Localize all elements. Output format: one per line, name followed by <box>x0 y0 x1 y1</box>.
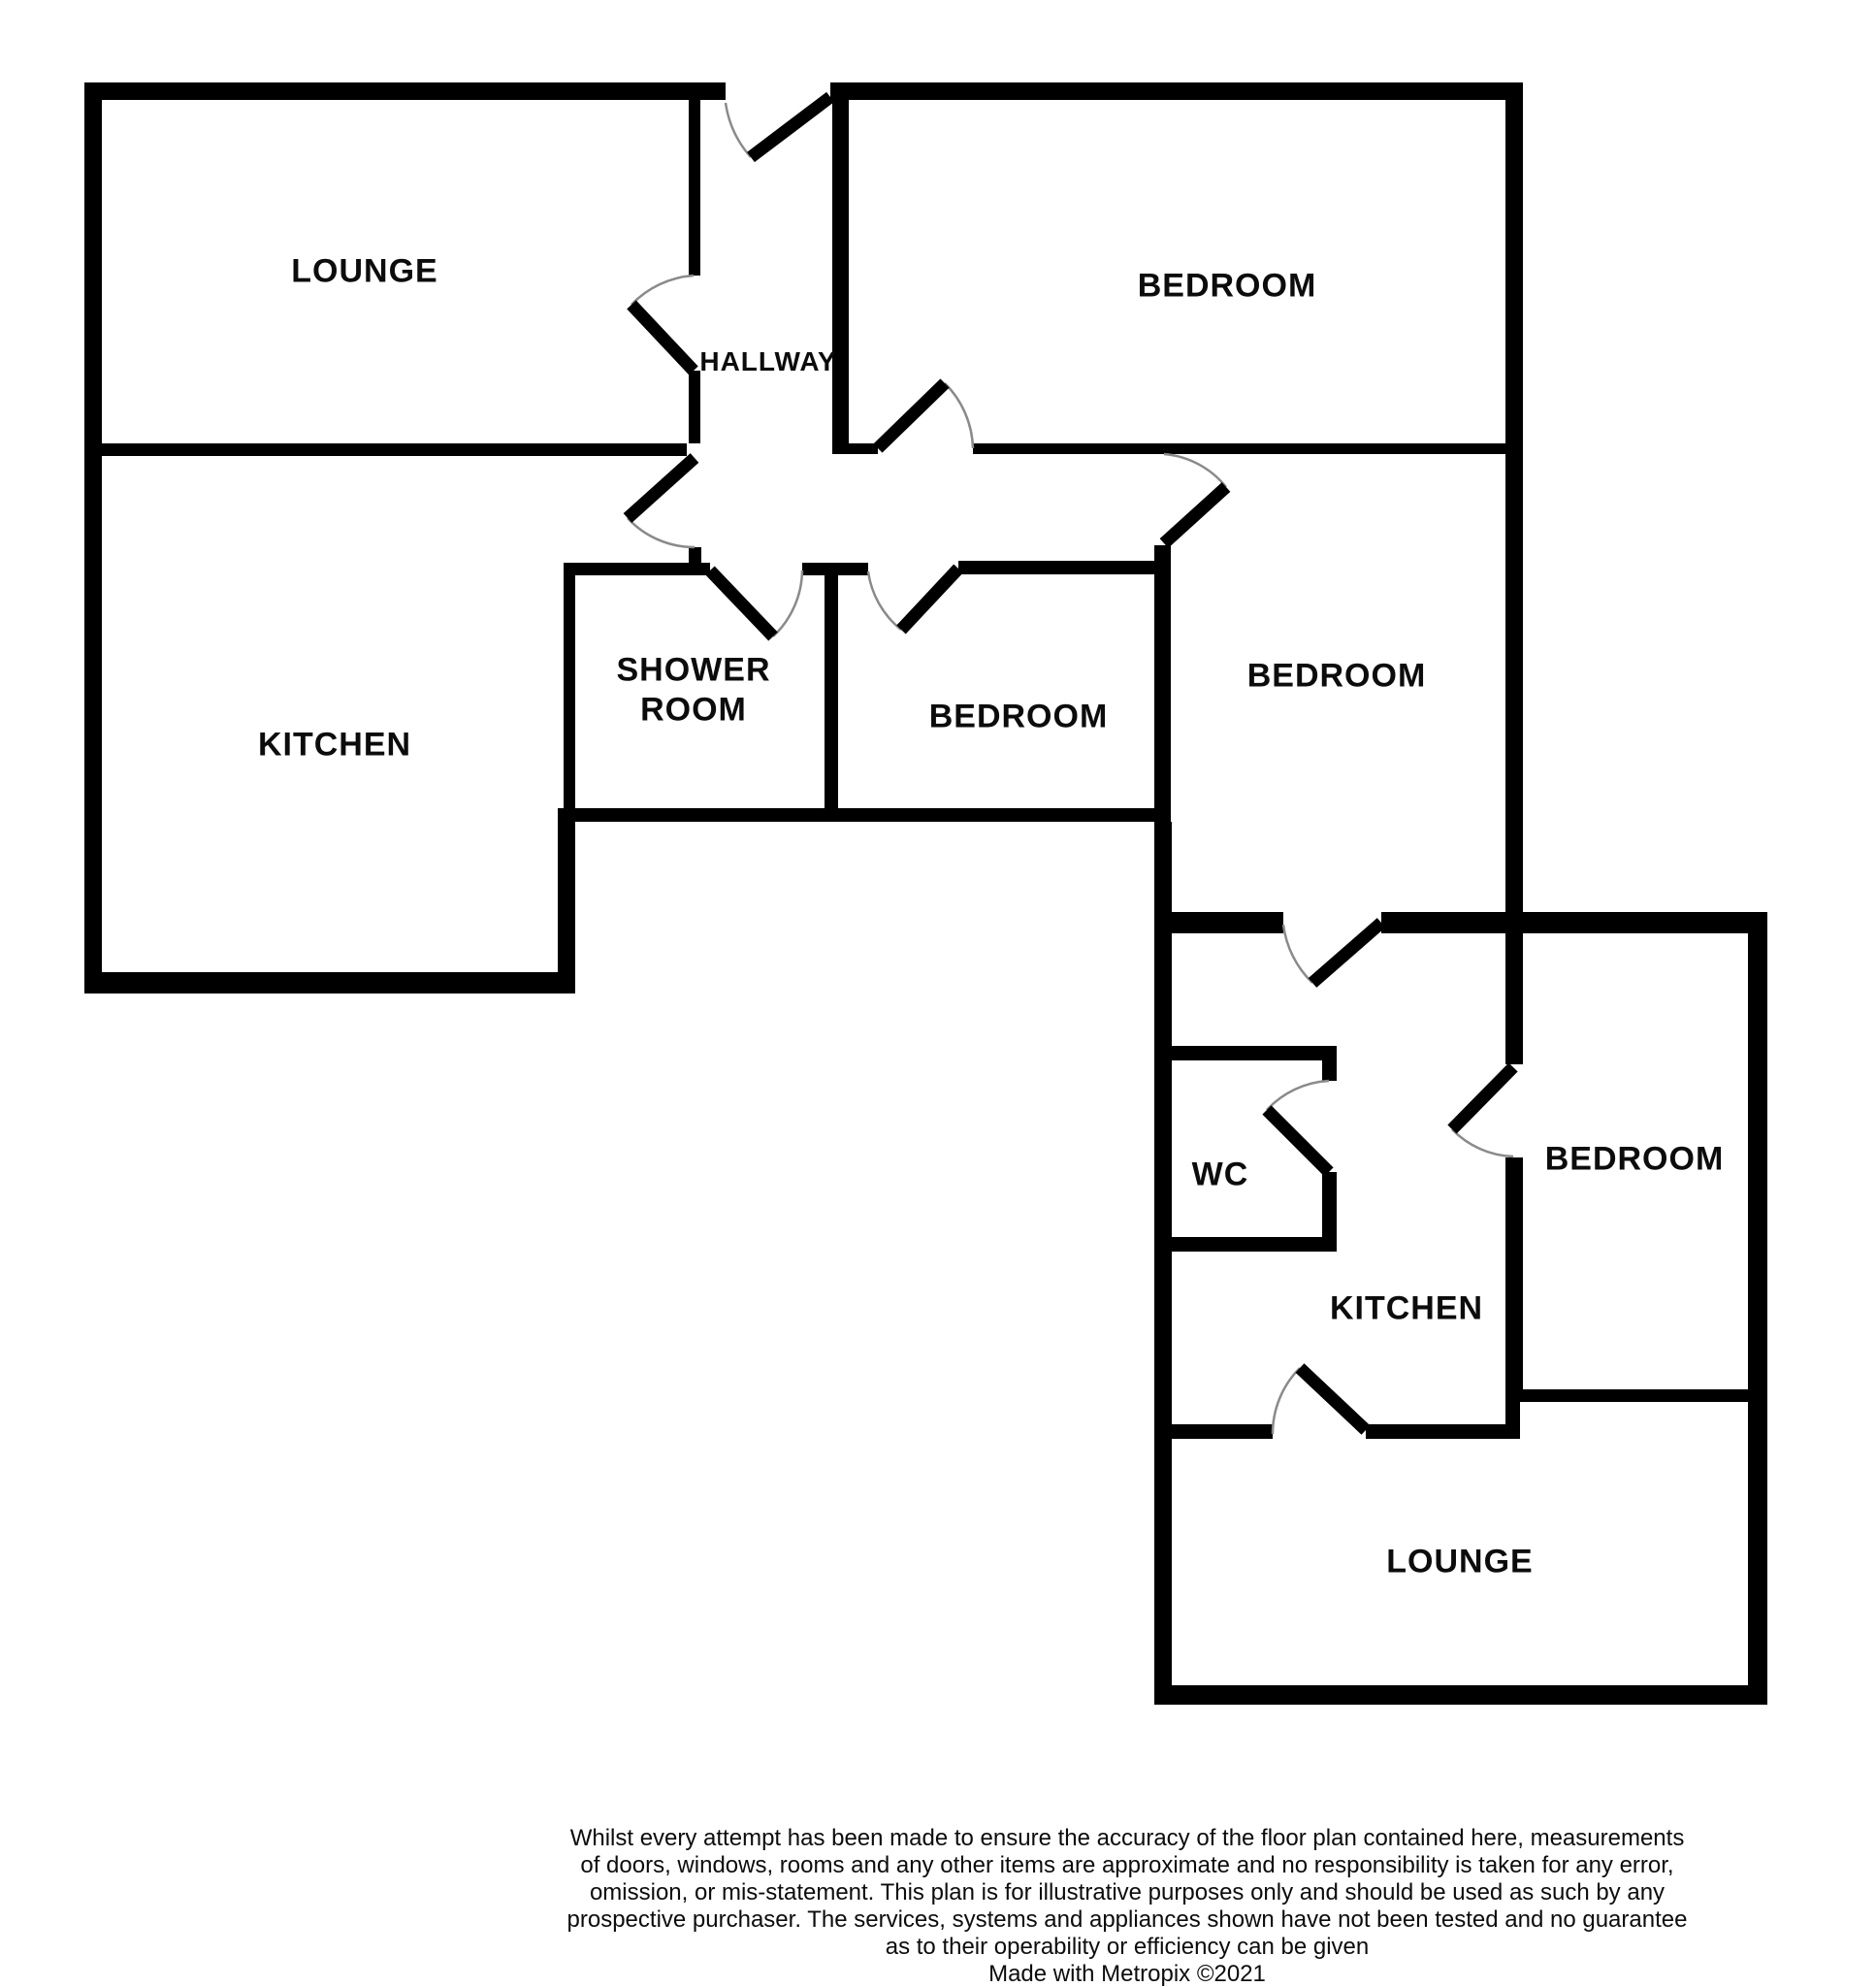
room-label-bedroom-lower: BEDROOM <box>1545 1139 1725 1179</box>
disclaimer-line-2: of doors, windows, rooms and any other i… <box>429 1852 1826 1879</box>
room-label-line: HALLWAY <box>699 345 836 378</box>
wall-segment <box>1172 1424 1273 1439</box>
wall-segment <box>84 82 726 100</box>
room-label-line: LOUNGE <box>1386 1542 1533 1581</box>
disclaimer-line-1: Whilst every attempt has been made to en… <box>429 1825 1826 1852</box>
room-label-line: WC <box>1192 1155 1249 1194</box>
shower-room-door-arc <box>773 570 802 636</box>
kitchen-door-arc <box>628 518 695 547</box>
room-label-line: KITCHEN <box>1330 1288 1483 1328</box>
bedroom-lower-door-arc <box>1452 1129 1513 1156</box>
wall-segment <box>832 100 849 443</box>
disclaimer-line-4: prospective purchaser. The services, sys… <box>429 1906 1826 1934</box>
room-label-wc: WC <box>1192 1155 1249 1194</box>
room-label-line: LOUNGE <box>291 251 437 291</box>
wall-segment <box>1366 1424 1518 1439</box>
room-label-bedroom-top: BEDROOM <box>1138 266 1317 306</box>
entry-door-leaf <box>751 97 830 157</box>
room-label-hallway: HALLWAY <box>699 345 836 378</box>
wall-segment <box>1748 912 1767 1705</box>
wall-segment <box>958 561 1156 574</box>
disclaimer-line-5: as to their operability or efficiency ca… <box>429 1934 1826 1961</box>
wall-segment <box>558 808 1171 822</box>
kitchen-door-leaf <box>628 458 695 518</box>
room-label-line: ROOM <box>617 691 771 731</box>
wall-segment <box>689 547 701 563</box>
wall-segment <box>84 443 687 456</box>
lounge-door-leaf <box>631 305 694 371</box>
bedroom-top-door-arc <box>945 383 973 448</box>
wall-segment <box>973 443 1505 454</box>
wall-segment <box>1154 545 1171 822</box>
wall-segment <box>564 563 710 575</box>
wc-door-leaf <box>1267 1110 1329 1172</box>
wall-segment <box>1505 1402 1520 1439</box>
wall-segment <box>832 443 878 454</box>
wall-segment <box>1172 1046 1322 1060</box>
kitchen-lower-door-leaf <box>1312 923 1381 983</box>
floorplan-svg <box>0 0 1876 1987</box>
wall-segment <box>1154 822 1172 1705</box>
lounge-door-arc <box>631 276 694 305</box>
wall-segment <box>84 972 575 993</box>
room-label-line: KITCHEN <box>258 725 411 765</box>
room-label-line: BEDROOM <box>929 697 1109 736</box>
wall-segment <box>689 371 700 443</box>
lounge-lower-door-arc <box>1273 1368 1300 1434</box>
room-label-lounge-upper: LOUNGE <box>291 251 437 291</box>
room-label-line: BEDROOM <box>1247 656 1427 696</box>
floorplan-canvas: LOUNGEHALLWAYBEDROOMKITCHENSHOWERROOMBED… <box>0 0 1876 1987</box>
wall-segment <box>830 82 1523 100</box>
wall-segment <box>802 563 868 575</box>
wall-segment <box>84 82 102 993</box>
room-label-kitchen-upper: KITCHEN <box>258 725 411 765</box>
lounge-lower-door-leaf <box>1300 1368 1366 1430</box>
room-label-kitchen-lower: KITCHEN <box>1330 1288 1483 1328</box>
wall-segment <box>1505 1157 1523 1402</box>
entry-door-arc <box>726 103 751 157</box>
wc-door-arc <box>1267 1081 1329 1110</box>
disclaimer-line-6: Made with Metropix ©2021 <box>429 1961 1826 1987</box>
wall-segment <box>1172 912 1283 933</box>
disclaimer-line-3: omission, or mis-statement. This plan is… <box>429 1879 1826 1906</box>
wall-segment <box>1172 1237 1337 1252</box>
bedroom-right-door-arc <box>1164 454 1226 487</box>
wall-segment <box>1521 1389 1748 1402</box>
shower-room-door-leaf <box>710 570 773 636</box>
room-label-shower-room: SHOWERROOM <box>617 651 771 732</box>
wall-segment <box>689 100 700 276</box>
wall-segment <box>564 563 575 808</box>
bedroom-lower-door-leaf <box>1452 1067 1513 1129</box>
bedroom-middle-door-leaf <box>901 569 958 630</box>
bedroom-right-door-leaf <box>1164 487 1226 543</box>
bedroom-middle-door-arc <box>868 571 901 630</box>
disclaimer-text: Whilst every attempt has been made to en… <box>429 1825 1826 1987</box>
wall-segment <box>1154 1685 1767 1705</box>
room-label-line: BEDROOM <box>1138 266 1317 306</box>
wall-segment <box>558 820 575 972</box>
bedroom-top-door-leaf <box>878 383 945 448</box>
room-label-bedroom-middle: BEDROOM <box>929 697 1109 736</box>
wall-segment <box>1381 912 1767 933</box>
room-label-bedroom-right: BEDROOM <box>1247 656 1427 696</box>
wall-segment <box>1322 1046 1337 1081</box>
wall-segment <box>825 575 838 808</box>
room-label-line: BEDROOM <box>1545 1139 1725 1179</box>
room-label-line: SHOWER <box>617 651 771 691</box>
room-label-lounge-lower: LOUNGE <box>1386 1542 1533 1581</box>
kitchen-lower-door-arc <box>1283 925 1312 983</box>
